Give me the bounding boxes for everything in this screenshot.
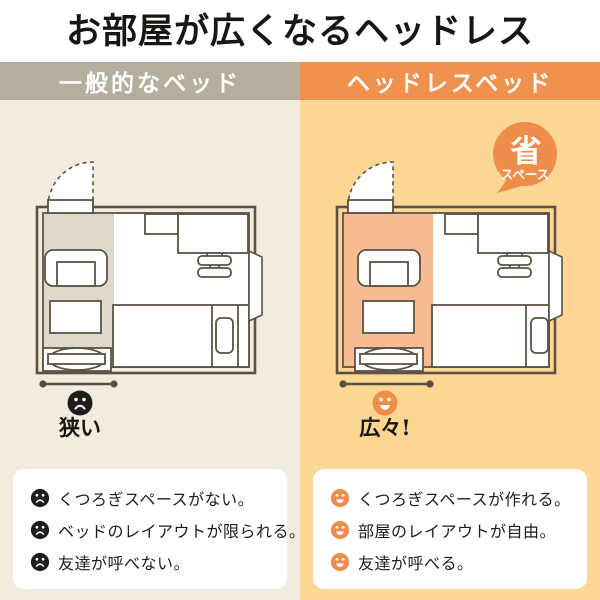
desk <box>478 214 548 253</box>
cons-item: ベッドのレイアウトが限られる。 <box>30 514 287 546</box>
panel-headless-bed: 省 スペース 広々! <box>300 100 600 600</box>
cons-item: くつろぎスペースがない。 <box>30 482 287 514</box>
header-headless-bed: ヘッドレスベッド <box>300 62 600 100</box>
pros-item: 部屋のレイアウトが自由。 <box>330 514 587 546</box>
tv-board <box>355 348 423 371</box>
smile-face-icon <box>330 520 350 540</box>
sad-face-icon <box>68 391 93 416</box>
free-space-overlay <box>44 214 114 366</box>
smile-face-icon <box>373 391 398 416</box>
sad-face-icon <box>30 520 50 540</box>
pros-item: くつろぎスペースが作れる。 <box>330 482 587 514</box>
badge-sub-label: スペース <box>501 167 550 182</box>
header-generic-bed-label: 一般的なベッド <box>59 64 241 98</box>
bed <box>113 305 249 367</box>
width-measurement <box>339 380 433 387</box>
smile-face-icon <box>330 552 350 572</box>
pros-box: くつろぎスペースが作れる。 部屋のレイアウトが自由。 友達が呼べる。 <box>313 469 587 589</box>
door-icon <box>48 162 93 213</box>
side-table <box>363 301 414 333</box>
mood-label-spacious: 広々! <box>359 415 410 440</box>
tv-board <box>43 348 111 371</box>
comparison-headers: 一般的なベッド ヘッドレスベッド <box>0 62 600 100</box>
headless-bed <box>432 305 549 367</box>
window-icon <box>249 251 262 321</box>
smile-face-icon <box>330 488 350 508</box>
cons-text: ベッドのレイアウトが限られる。 <box>58 518 306 542</box>
cons-text: 友達が呼べない。 <box>58 550 190 574</box>
space-saving-badge: 省 スペース <box>493 122 557 193</box>
door-icon <box>348 162 393 213</box>
badge-main-label: 省 <box>511 134 542 170</box>
cons-text: くつろぎスペースがない。 <box>58 486 254 510</box>
desk-chair <box>198 253 231 277</box>
header-generic-bed: 一般的なベッド <box>0 62 300 100</box>
cons-box: くつろぎスペースがない。 ベッドのレイアウトが限られる。 友達が呼べない。 <box>13 469 287 589</box>
header-headless-bed-label: ヘッドレスベッド <box>347 64 553 98</box>
width-measurement <box>39 380 117 387</box>
infographic: お部屋が広くなるヘッドレス 一般的なベッド ヘッドレスベッド <box>0 0 600 600</box>
pros-text: 友達が呼べる。 <box>358 550 474 574</box>
panel-generic-bed: 狭い くつろぎスペースがない。 ベッドのレイアウトが限られる。 <box>0 100 300 600</box>
sad-face-icon <box>30 488 50 508</box>
sofa <box>45 250 107 286</box>
window-icon <box>549 251 562 321</box>
wall-shelf <box>145 214 178 234</box>
wall-shelf <box>445 214 478 234</box>
floorplan-generic-bed: 狭い <box>0 100 300 445</box>
desk-chair <box>498 253 531 277</box>
desk <box>178 214 248 253</box>
sad-face-icon <box>30 552 50 572</box>
page-title: お部屋が広くなるヘッドレス <box>66 14 534 49</box>
pros-text: 部屋のレイアウトが自由。 <box>358 518 556 542</box>
pros-item: 友達が呼べる。 <box>330 546 587 578</box>
floorplan-headless-bed: 省 スペース 広々! <box>300 100 600 445</box>
sofa <box>358 250 420 286</box>
cons-item: 友達が呼べない。 <box>30 546 287 578</box>
free-space-overlay <box>344 214 433 366</box>
side-table <box>50 301 101 333</box>
pros-text: くつろぎスペースが作れる。 <box>358 486 571 510</box>
title-bar: お部屋が広くなるヘッドレス <box>0 0 600 62</box>
mood-label-cramped: 狭い <box>58 415 101 440</box>
